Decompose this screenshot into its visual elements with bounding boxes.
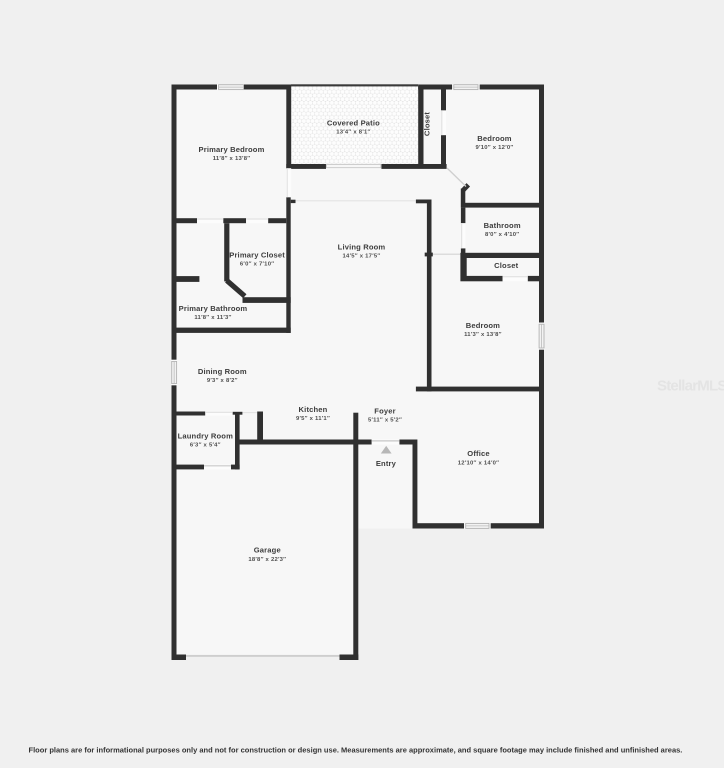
svg-text:Kitchen: Kitchen (299, 405, 328, 414)
svg-text:Entry: Entry (376, 459, 397, 468)
svg-text:StellarMLS: StellarMLS (657, 378, 724, 395)
svg-text:Floor plans are for informatio: Floor plans are for informational purpos… (29, 746, 683, 755)
svg-text:6′3″ x 5′4″: 6′3″ x 5′4″ (190, 443, 221, 449)
svg-text:Living Room: Living Room (338, 242, 386, 251)
svg-text:9′5″ x 11′1″: 9′5″ x 11′1″ (296, 416, 330, 422)
svg-text:11′3″ x 13′8″: 11′3″ x 13′8″ (464, 332, 502, 338)
svg-text:13′4″ x 8′1″: 13′4″ x 8′1″ (336, 129, 370, 135)
svg-text:Garage: Garage (254, 545, 281, 554)
svg-text:9′3″ x 8′2″: 9′3″ x 8′2″ (207, 378, 238, 384)
svg-text:14′5″ x 17′5″: 14′5″ x 17′5″ (343, 254, 381, 260)
svg-text:12′10″ x 14′0″: 12′10″ x 14′0″ (458, 460, 499, 466)
svg-text:Primary Closet: Primary Closet (229, 251, 285, 260)
svg-text:Closet: Closet (423, 112, 432, 136)
svg-text:Laundry Room: Laundry Room (178, 432, 233, 441)
svg-text:Covered Patio: Covered Patio (327, 118, 380, 127)
svg-text:Office: Office (467, 449, 489, 458)
svg-text:Foyer: Foyer (374, 407, 395, 416)
svg-text:8′0″ x 4′10″: 8′0″ x 4′10″ (485, 232, 519, 238)
svg-text:11′8″ x 13′8″: 11′8″ x 13′8″ (213, 156, 251, 162)
svg-text:Bathroom: Bathroom (484, 221, 521, 230)
svg-text:Closet: Closet (494, 261, 518, 270)
svg-text:Primary Bathroom: Primary Bathroom (179, 304, 248, 313)
svg-text:Dining Room: Dining Room (198, 367, 247, 376)
svg-text:11′8″ x 11′3″: 11′8″ x 11′3″ (194, 315, 231, 321)
svg-text:9′10″ x 12′0″: 9′10″ x 12′0″ (476, 145, 514, 151)
svg-text:Bedroom: Bedroom (477, 134, 511, 143)
svg-text:18′8″ x 22′3″: 18′8″ x 22′3″ (248, 557, 286, 563)
svg-text:6′0″ x 7′10″: 6′0″ x 7′10″ (240, 262, 274, 268)
svg-text:Primary Bedroom: Primary Bedroom (199, 145, 265, 154)
svg-text:Bedroom: Bedroom (466, 321, 500, 330)
svg-text:5′11″ x 5′2″: 5′11″ x 5′2″ (368, 418, 402, 424)
